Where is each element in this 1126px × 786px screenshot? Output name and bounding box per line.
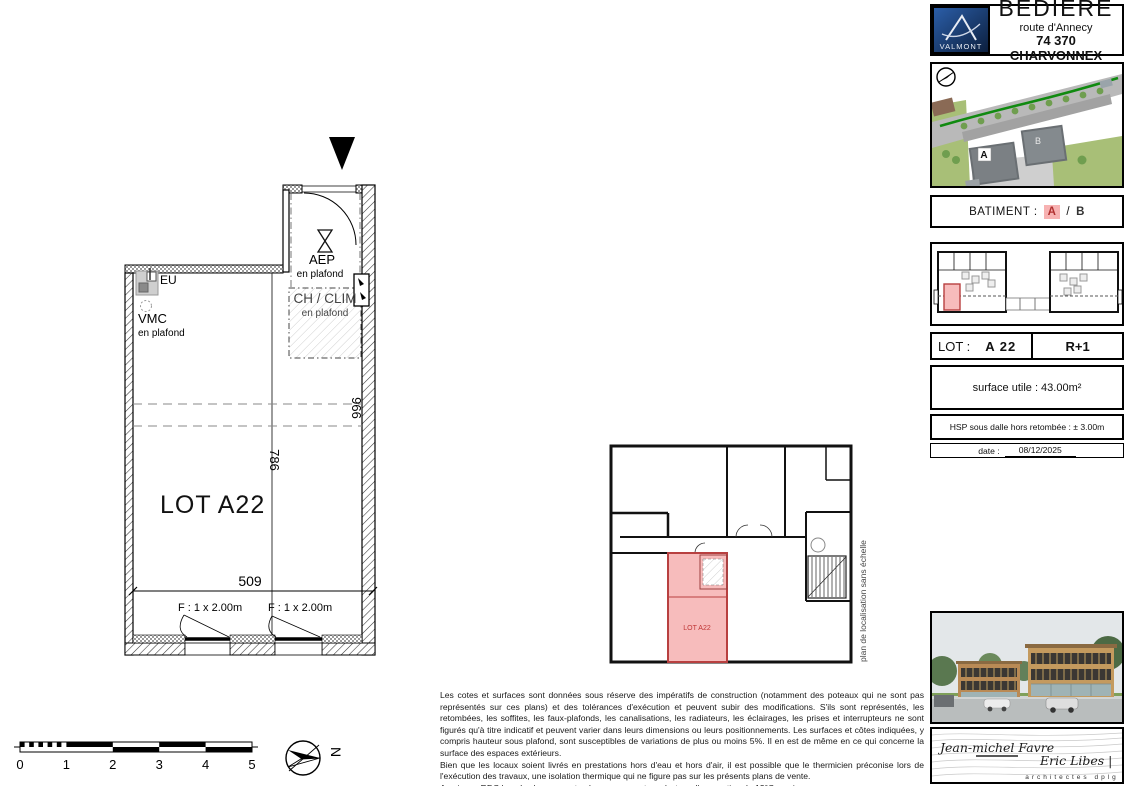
scale-tick-2: 2	[109, 757, 116, 772]
vmc-sub-label: en plafond	[138, 328, 185, 339]
key-plans-panel	[930, 242, 1124, 326]
ceiling-drop-lines	[133, 404, 362, 426]
ch-clim-label: CH / CLIM	[293, 291, 356, 306]
rendering-building-near	[1025, 644, 1117, 697]
window-label-1: F : 1 x 2.00m	[178, 602, 242, 614]
rendering-panel	[930, 611, 1124, 724]
scale-tick-0: 0	[16, 757, 23, 772]
logo-text: VALMONT	[940, 42, 983, 51]
scale-and-north: 0 1 2 3 4 5 N	[10, 728, 355, 783]
eu-label: EU	[160, 273, 177, 287]
scale-tick-4: 4	[202, 757, 209, 772]
title-block: VALMONT BEDIERE route d'Annecy 74 370 CH…	[930, 4, 1124, 56]
entrance-arrow-icon	[329, 137, 355, 170]
disclaimer-notes: Les cotes et surfaces sont données sous …	[440, 690, 924, 786]
scale-tick-3: 3	[156, 757, 163, 772]
location-elevator	[811, 538, 825, 552]
ch-clim-sub-label: en plafond	[302, 308, 349, 319]
key-plan-building-b	[1050, 252, 1122, 312]
date-row: date : 08/12/2025	[930, 443, 1124, 458]
plan-sheet: AEP en plafond CH / CLIM en plafond EU V…	[0, 0, 1126, 786]
north-label: N	[328, 747, 344, 757]
rendering-image	[932, 613, 1122, 722]
main-floor-plan: AEP en plafond CH / CLIM en plafond EU V…	[90, 120, 430, 690]
site-building-b-label: B	[1035, 136, 1041, 146]
key-plan-walkway	[1006, 298, 1050, 310]
disclaimer-p2: Bien que les locaux soient livrés en pre…	[440, 760, 924, 783]
aep-label: AEP	[309, 252, 335, 267]
location-lot-highlight: LOT A22	[668, 553, 727, 662]
eu-drain-icon	[136, 268, 158, 312]
site-plan-image: A B	[932, 64, 1122, 186]
window-label-2: F : 1 x 2.00m	[268, 602, 332, 614]
architects-title: architectes dplg	[1025, 774, 1119, 781]
lot-level: R+1	[1033, 334, 1122, 358]
location-doors	[695, 525, 772, 553]
lot-label: LOT A22	[160, 491, 265, 519]
batiment-separator: /	[1066, 206, 1070, 218]
surface-row: surface utile : 43.00m²	[930, 365, 1124, 410]
architect-name-1: Jean-michel Favre	[937, 740, 1054, 755]
architects-image: Jean-michel Favre Eric Libes | architect…	[932, 729, 1122, 782]
scale-bar: 0 1 2 3 4 5	[14, 742, 258, 772]
valmont-logo: VALMONT	[932, 6, 990, 54]
dim-509: 509	[238, 573, 262, 589]
location-lot-label: LOT A22	[683, 625, 711, 632]
hsp-row: HSP sous dalle hors retombée : ± 3.00m	[930, 414, 1124, 440]
scale-tick-1: 1	[63, 757, 70, 772]
date-value: 08/12/2025	[1005, 445, 1076, 457]
vmc-label: VMC	[138, 311, 167, 326]
dim-786: 786	[267, 449, 282, 471]
dim-966: 966	[349, 397, 364, 419]
aep-sub-label: en plafond	[297, 269, 344, 280]
date-label: date :	[978, 446, 1000, 456]
window-leaders	[180, 615, 320, 637]
lot-label: LOT :	[938, 339, 970, 354]
surface-value: surface utile : 43.00m²	[932, 367, 1122, 408]
architects-panel: Jean-michel Favre Eric Libes | architect…	[930, 727, 1124, 784]
batiment-a-badge: A	[1044, 205, 1061, 219]
batiment-b-label: B	[1076, 206, 1085, 218]
lot-number: A 22	[970, 339, 1031, 354]
aep-valve-icon	[318, 230, 332, 252]
project-title: BEDIERE	[990, 0, 1122, 22]
north-arrow-icon: N	[286, 741, 344, 775]
site-building-a-label: A	[980, 150, 987, 161]
location-caption: plan de localisation sans échelle	[858, 540, 868, 662]
project-address-line2: 74 370 CHARVONNEX	[990, 34, 1122, 63]
architect-name-2: Eric Libes |	[1039, 753, 1112, 768]
rendering-building-far	[956, 661, 1022, 697]
hsp-value: HSP sous dalle hors retombée : ± 3.00m	[932, 416, 1122, 438]
site-compass-icon	[937, 68, 955, 86]
site-plan-panel: A B	[930, 62, 1124, 188]
scale-tick-5: 5	[248, 757, 255, 772]
door-arc	[304, 193, 356, 245]
key-plans-image	[932, 244, 1122, 324]
location-stairs	[808, 556, 846, 598]
location-plan: LOT A22 plan de localisation sans échell…	[595, 435, 880, 680]
disclaimer-p1: Les cotes et surfaces sont données sous …	[440, 690, 924, 760]
batiment-label: BATIMENT :	[969, 206, 1037, 218]
lot-row: LOT : A 22 R+1	[930, 332, 1124, 360]
batiment-row: BATIMENT : A / B	[930, 195, 1124, 228]
key-plan-lot-highlight	[944, 284, 960, 310]
location-walls	[611, 446, 851, 662]
